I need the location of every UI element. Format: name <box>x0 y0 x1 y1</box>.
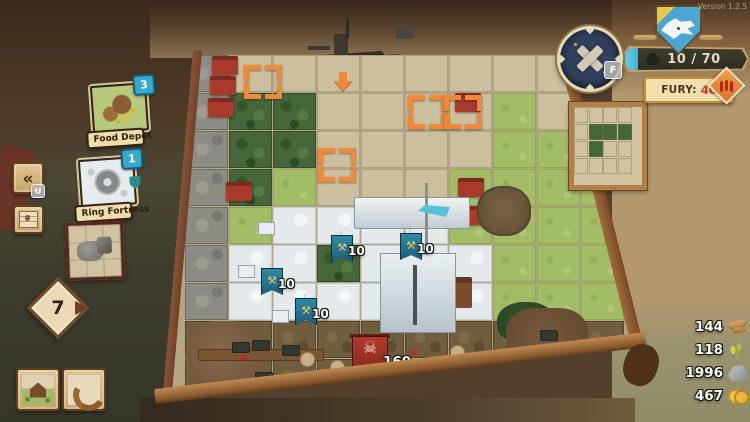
resource-row: 1996 <box>685 362 747 384</box>
mini-map-cell <box>603 158 617 174</box>
wood-icon <box>728 319 747 335</box>
target-bracket-icon <box>444 95 482 129</box>
unit-banner[interactable]: 10 <box>295 294 337 336</box>
claw-icon <box>725 80 728 91</box>
board-tile[interactable] <box>449 131 492 168</box>
start-wave-button[interactable] <box>62 368 106 411</box>
axe-emblem-icon <box>406 234 416 253</box>
board-tile[interactable] <box>537 359 580 396</box>
gold-flourish <box>699 35 723 42</box>
compass-tick <box>557 55 565 63</box>
red-depot-building <box>226 182 252 201</box>
battle-compass-button[interactable] <box>557 26 623 92</box>
health-value: 10 / 70 <box>667 52 720 67</box>
board-tile[interactable] <box>493 131 536 168</box>
wolf-eye <box>677 27 680 30</box>
unit-count: 10 <box>278 277 295 291</box>
compass-tick <box>586 84 594 92</box>
axe-emblem-icon <box>337 236 347 255</box>
helmet-icon <box>645 53 660 65</box>
board-tile[interactable] <box>273 131 316 168</box>
board-tile[interactable] <box>493 359 536 396</box>
version-label: Version 1.2.5 <box>683 2 747 11</box>
mini-map-cell <box>589 158 603 174</box>
terrain-bottom <box>140 398 635 422</box>
mini-map-cell <box>603 141 617 157</box>
board-tile[interactable] <box>273 207 316 244</box>
wheat-icon <box>728 342 747 358</box>
enemy-vehicle <box>252 340 270 351</box>
resource-value: 467 <box>695 388 723 404</box>
board-tile[interactable] <box>493 93 536 130</box>
wall-segment <box>258 222 275 235</box>
day-counter: 7 <box>36 286 80 330</box>
skull-icon <box>363 337 377 359</box>
board-tile[interactable] <box>185 169 228 206</box>
board-tile[interactable] <box>361 55 404 92</box>
resource-value: 1996 <box>685 365 723 381</box>
board-tile[interactable] <box>537 207 580 244</box>
village-icon <box>22 375 54 405</box>
resource-row: 118 <box>695 339 747 361</box>
axe-emblem-icon <box>301 299 311 318</box>
board-tile[interactable] <box>405 55 448 92</box>
red-depot-building <box>208 98 234 117</box>
card-count-badge: 3 <box>132 74 155 96</box>
mini-map-cell <box>574 107 588 123</box>
enemy-vehicle <box>232 342 250 353</box>
axe-emblem-icon <box>267 269 277 288</box>
board-tile[interactable] <box>185 245 228 282</box>
card-count-badge: 1 <box>120 148 143 170</box>
enemy-vehicle <box>282 345 300 356</box>
board-tile[interactable] <box>405 131 448 168</box>
mini-map-cell <box>589 107 603 123</box>
next-tile-preview[interactable] <box>65 221 125 281</box>
wall-segment <box>238 265 255 278</box>
red-depot-building <box>212 56 238 75</box>
compass-spark <box>574 43 577 46</box>
overview-button[interactable] <box>16 368 60 411</box>
target-bracket-icon <box>408 95 446 129</box>
undo-hotkey-badge: U <box>31 184 45 198</box>
board-tile[interactable] <box>581 359 624 396</box>
war-horn-icon <box>68 375 100 405</box>
game-screen: 10101010160 3 Food Depot 1 Ring Fortress… <box>0 0 750 422</box>
card-ring-fortress[interactable]: 1 Ring Fortress <box>78 156 140 223</box>
board-tile[interactable] <box>493 245 536 282</box>
stone-icon <box>728 365 747 381</box>
fury-label: FURY: <box>661 84 697 96</box>
board-tile[interactable] <box>229 131 272 168</box>
board-tile[interactable] <box>361 93 404 130</box>
gold-icon <box>728 388 747 404</box>
red-depot-building <box>458 178 484 197</box>
board-tile[interactable] <box>493 55 536 92</box>
mini-map-cell <box>574 124 588 140</box>
board-tile[interactable] <box>449 55 492 92</box>
compass-hotkey-badge: F <box>604 61 622 79</box>
resource-row: 467 <box>695 385 747 407</box>
mini-map-cell <box>589 124 603 140</box>
fortress-pole <box>413 265 417 325</box>
resource-value: 144 <box>695 319 723 335</box>
resource-panel: 1441181996467 <box>685 316 747 407</box>
mini-map-cell <box>603 124 617 140</box>
red-depot-building <box>210 76 236 95</box>
target-bracket-icon <box>244 65 282 99</box>
gold-flourish <box>633 35 657 42</box>
unit-count: 10 <box>417 242 434 256</box>
next-section-preview <box>569 102 647 190</box>
mini-map-cell <box>618 141 632 157</box>
compass-tick <box>586 26 594 34</box>
target-bracket-icon <box>318 148 356 182</box>
pond <box>477 186 531 236</box>
camp-tent <box>420 380 435 395</box>
mini-map-cell <box>574 141 588 157</box>
board-tile[interactable] <box>185 207 228 244</box>
card-food-depot[interactable]: 3 Food Depot <box>90 82 152 149</box>
resource-value: 118 <box>695 342 723 358</box>
mini-map-cell <box>618 107 632 123</box>
day-counter-value: 7 <box>36 286 80 330</box>
unit-banner[interactable]: 10 <box>400 229 442 271</box>
board-tile[interactable] <box>317 93 360 130</box>
wall-segment <box>272 310 289 323</box>
map-button[interactable] <box>13 205 44 234</box>
enemy-vehicle <box>320 390 338 401</box>
camp-tent <box>300 352 315 367</box>
map-icon <box>19 211 38 228</box>
board-tile[interactable] <box>185 283 228 320</box>
drop-arrow-icon <box>334 72 352 92</box>
fortress-wall <box>354 197 470 229</box>
unit-count: 10 <box>348 244 365 258</box>
mini-map-cell <box>618 124 632 140</box>
unit-count: 10 <box>312 307 329 321</box>
enemy-vehicle <box>540 330 558 341</box>
board-tile[interactable] <box>537 245 580 282</box>
camp-prop <box>240 355 247 360</box>
board-tile[interactable] <box>361 131 404 168</box>
mini-map-cell <box>603 107 617 123</box>
mini-map-cell <box>574 158 588 174</box>
board-tile[interactable] <box>273 169 316 206</box>
mini-map-cell <box>618 158 632 174</box>
mini-map-cell <box>589 141 603 157</box>
unit-banner[interactable]: 10 <box>331 231 373 273</box>
camp-tent <box>355 385 370 400</box>
resource-row: 144 <box>695 316 747 338</box>
